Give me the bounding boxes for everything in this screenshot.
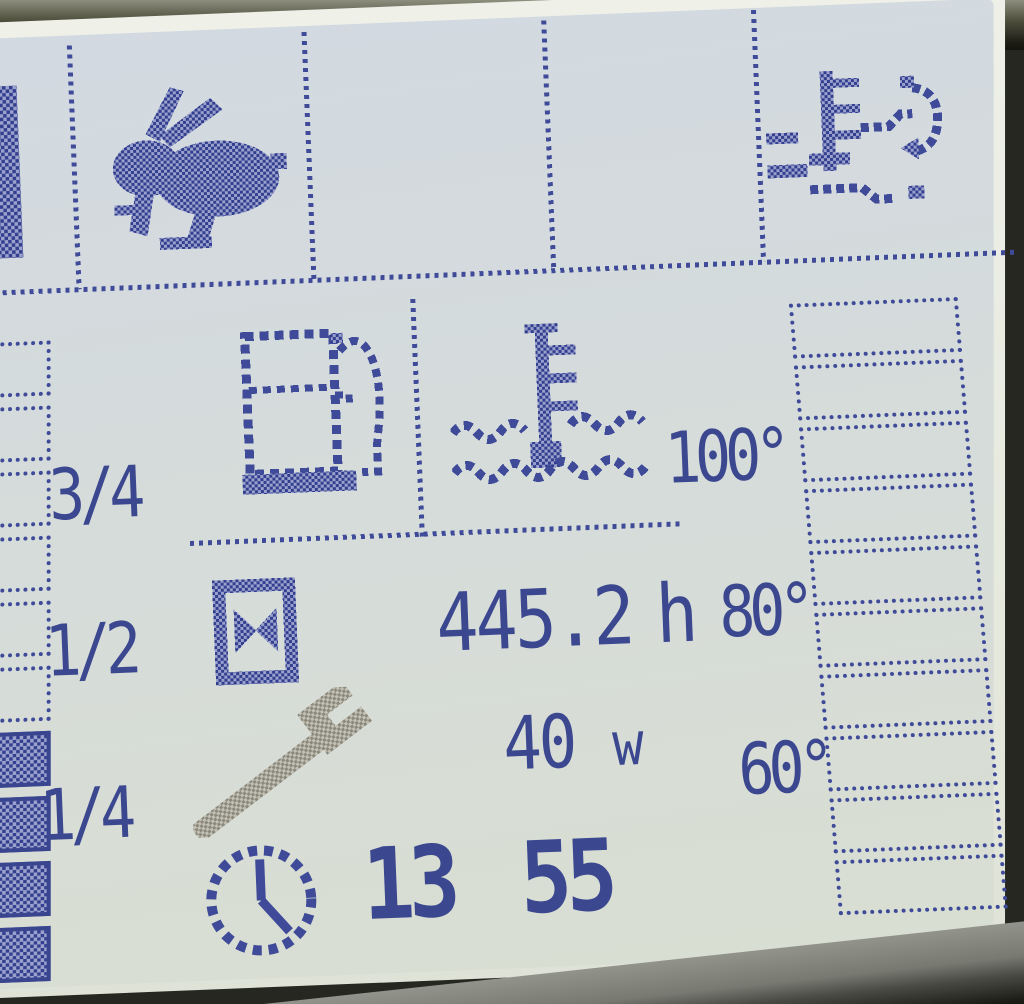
temp-label-80: 80° xyxy=(718,574,811,648)
coolant-temperature-icon xyxy=(446,320,653,513)
service-unit: w xyxy=(611,710,642,780)
fuel-gauge-segment xyxy=(0,666,51,726)
clock-time: 1355 xyxy=(361,826,614,935)
lcd-photo-stage: 3/4 1/2 1/4 xyxy=(0,0,1024,1004)
cell-divider-2 xyxy=(301,32,316,280)
clock-hours: 13 xyxy=(360,825,456,944)
hour-meter: 445.2h xyxy=(435,573,697,664)
lcd-content: 3/4 1/2 1/4 xyxy=(0,0,1024,1004)
hourglass-icon xyxy=(211,577,299,686)
temp-gauge-segment xyxy=(819,668,992,730)
center-divider-line xyxy=(410,299,425,539)
temp-gauge-segment xyxy=(835,854,1008,916)
temp-gauge-segment xyxy=(804,483,977,545)
clock-minutes: 55 xyxy=(518,818,614,937)
fuel-gauge-segment xyxy=(0,536,51,596)
temp-label-60: 60° xyxy=(737,732,830,806)
fuel-label-quarter: 1/4 xyxy=(38,778,131,852)
fuel-label-three-quarters: 3/4 xyxy=(47,457,140,531)
icons-underline xyxy=(190,521,680,546)
fuel-gauge-segment xyxy=(0,340,51,400)
fuel-pump-icon xyxy=(236,323,396,524)
cell-divider-1 xyxy=(67,45,82,289)
fuel-gauge-segment xyxy=(0,601,51,661)
temp-gauge-segment xyxy=(814,606,987,668)
fuel-gauge-segment xyxy=(0,926,51,986)
rabbit-icon xyxy=(92,81,294,269)
fuel-gauge-segment xyxy=(0,405,51,465)
wrench-icon xyxy=(188,685,409,839)
temp-gauge-segment xyxy=(799,421,972,483)
hour-meter-value: 445.2 xyxy=(434,568,633,670)
cell-divider-3 xyxy=(541,20,556,270)
service-interval: 40w xyxy=(502,703,642,782)
cell-divider-4 xyxy=(751,10,766,262)
service-value: 40 xyxy=(502,700,576,788)
clock-icon xyxy=(198,835,325,966)
temp-gauge-segment xyxy=(824,730,997,792)
temperature-gauge xyxy=(789,297,1009,922)
temp-label-100: 100° xyxy=(664,419,787,495)
fuel-gauge-segment xyxy=(0,861,51,921)
temp-gauge-segment xyxy=(794,359,967,421)
temp-gauge-segment xyxy=(809,544,982,606)
fuel-gauge xyxy=(0,340,51,995)
temp-gauge-segment xyxy=(789,297,962,359)
thermometer-circulation-icon xyxy=(764,66,955,228)
fuel-gauge-segment xyxy=(0,471,51,531)
lcd-module: 3/4 1/2 1/4 xyxy=(0,0,1024,1004)
fuel-label-half: 1/2 xyxy=(44,613,137,687)
hour-meter-unit: h xyxy=(654,566,697,662)
temp-gauge-segment xyxy=(829,792,1002,854)
partial-bar-icon xyxy=(0,86,23,260)
